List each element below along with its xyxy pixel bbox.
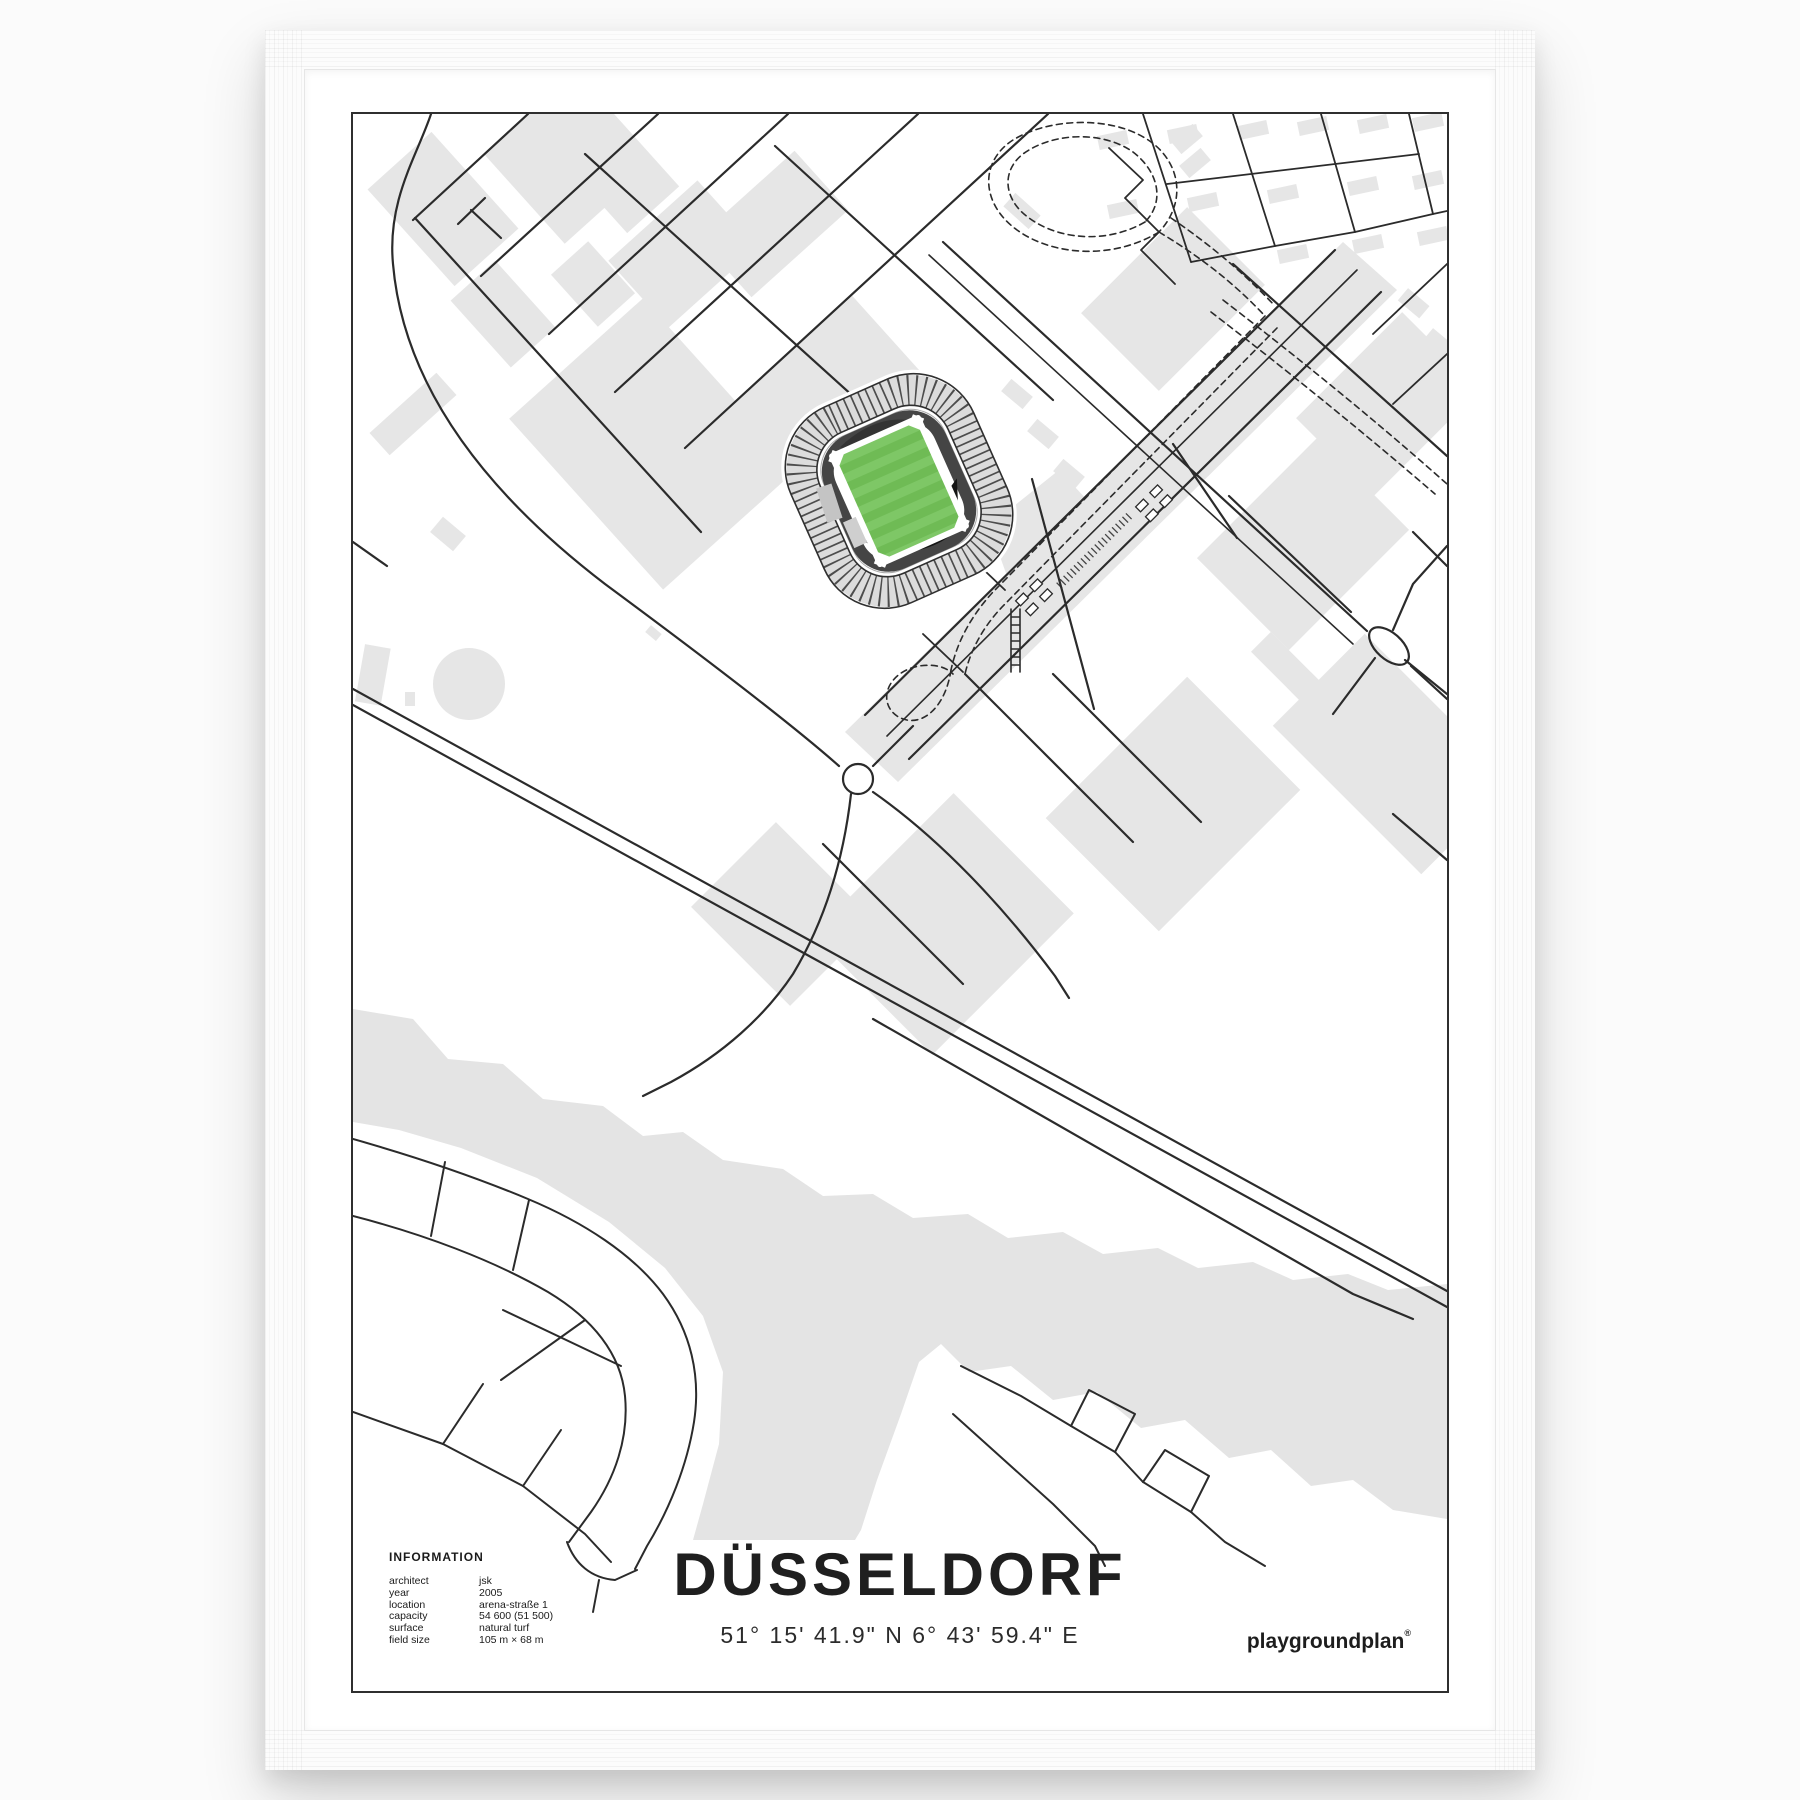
picture-frame: INFORMATION architect jsk year 2005 loca… [265, 30, 1535, 1770]
frame-edge-bottom [265, 1730, 1535, 1770]
frame-edge-top [265, 30, 1535, 70]
page-title: DÜSSELDORF [353, 1542, 1447, 1608]
poster-mat: INFORMATION architect jsk year 2005 loca… [305, 70, 1495, 1730]
stadium-map-poster: INFORMATION architect jsk year 2005 loca… [351, 112, 1449, 1693]
brand-logo: playgroundplan® [1247, 1630, 1411, 1654]
frame-edge-right [1495, 30, 1535, 1770]
roundabout-icon [843, 764, 873, 794]
city-map [353, 114, 1447, 1691]
registered-mark: ® [1404, 1628, 1411, 1638]
frame-edge-left [265, 30, 305, 1770]
park-circle [433, 648, 505, 720]
scene: INFORMATION architect jsk year 2005 loca… [0, 0, 1800, 1800]
brand-name: playgroundplan [1247, 1630, 1405, 1653]
urban-blocks [353, 114, 1447, 1540]
